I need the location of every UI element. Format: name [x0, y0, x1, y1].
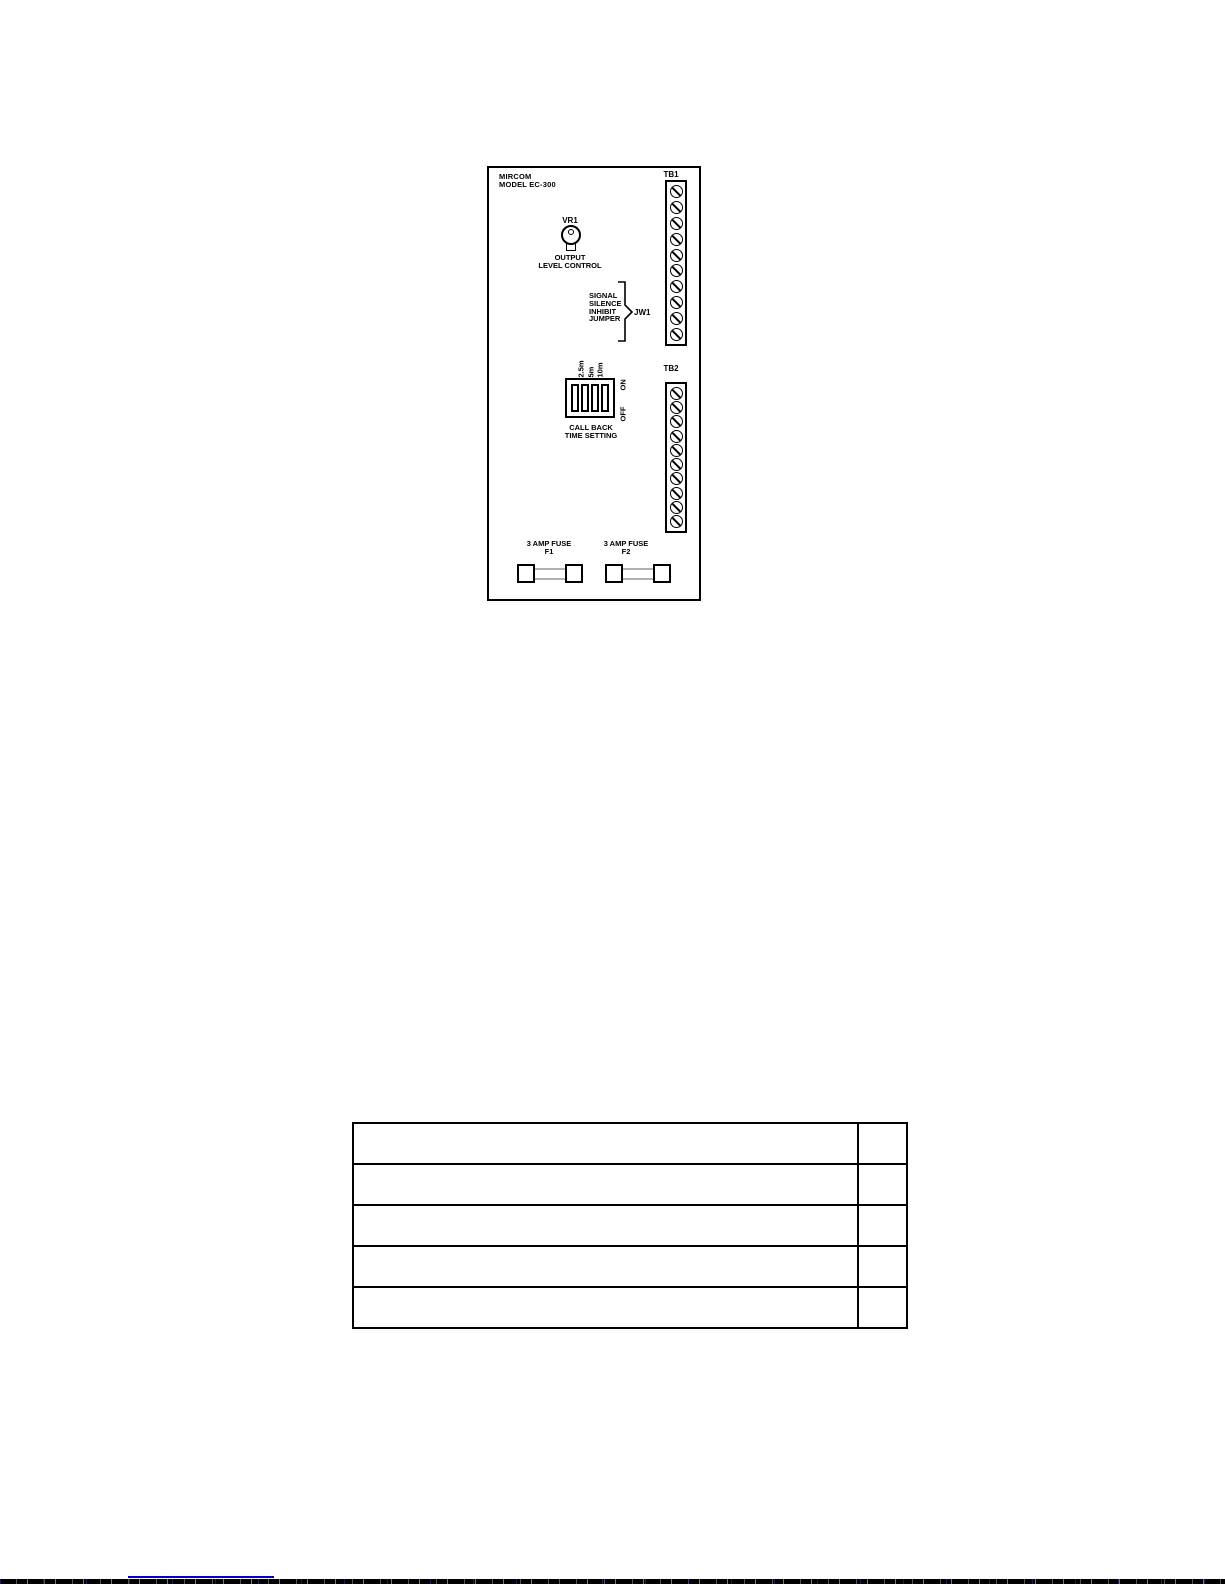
page-bottom-edge: [0, 1579, 1225, 1584]
table-cell-side: [857, 1247, 906, 1286]
table-cell-side: [857, 1206, 906, 1245]
table-cell-side: [857, 1124, 906, 1163]
screw-terminal-icon: [670, 401, 683, 414]
table-row: [354, 1204, 906, 1245]
screw-terminal-icon: [670, 264, 683, 277]
screw-terminal-icon: [670, 387, 683, 400]
screw-terminal-icon: [670, 185, 683, 198]
fuse-body: [535, 568, 565, 580]
tb2-label: TB2: [661, 364, 681, 373]
table-cell-main: [354, 1247, 857, 1286]
dip-switch-block: [565, 378, 615, 418]
screw-terminal-icon: [670, 328, 683, 341]
potentiometer-wiper-icon: [568, 229, 574, 235]
screw-terminal-icon: [670, 515, 683, 528]
dip-time-label-10m: 10m: [596, 350, 605, 378]
table-cell-main: [354, 1165, 857, 1204]
dip-switch-slot: [591, 384, 599, 412]
tb1-terminal-block: [665, 180, 687, 346]
fuse2-icon: [605, 564, 671, 583]
board-title: MIRCOMMODEL EC-300: [499, 173, 556, 189]
table-row: [354, 1286, 906, 1327]
screw-terminal-icon: [670, 472, 683, 485]
screw-terminal-icon: [670, 501, 683, 514]
table-cell-side: [857, 1165, 906, 1204]
dip-time-label-2-5m: 2.5m: [577, 350, 586, 378]
tb2-terminal-block: [665, 382, 687, 533]
dip-on-label: ON: [619, 375, 628, 391]
page-root: { "board": { "title_line1": "MIRCOM", "t…: [0, 0, 1225, 1585]
table-row: [354, 1245, 906, 1286]
output-level-caption: OUTPUTLEVEL CONTROL: [520, 254, 620, 270]
table-cell-main: [354, 1124, 857, 1163]
jw1-label: JW1: [634, 308, 650, 317]
fuse-end-cap: [517, 564, 535, 583]
footer-link-underline[interactable]: [128, 1576, 274, 1578]
fuse-end-cap: [605, 564, 623, 583]
table-row: [354, 1163, 906, 1204]
screw-terminal-icon: [670, 233, 683, 246]
screw-terminal-icon: [670, 217, 683, 230]
fuse1-icon: [517, 564, 583, 583]
screw-terminal-icon: [670, 201, 683, 214]
empty-table: [352, 1122, 908, 1329]
table-cell-main: [354, 1206, 857, 1245]
dip-switch-slot: [571, 384, 579, 412]
dip-switch-slot: [601, 384, 609, 412]
fuse-end-cap: [653, 564, 671, 583]
tb1-label: TB1: [661, 170, 681, 179]
callback-caption-line2: TIME SETTING: [565, 431, 618, 440]
fuse1-label: F1: [545, 547, 554, 556]
dip-switch-slot: [581, 384, 589, 412]
board-title-line2: MODEL EC-300: [499, 180, 556, 189]
screw-terminal-icon: [670, 487, 683, 500]
screw-terminal-icon: [670, 444, 683, 457]
screw-terminal-icon: [670, 249, 683, 262]
potentiometer-icon: [561, 225, 581, 245]
table-row: [354, 1124, 906, 1163]
output-caption-line2: LEVEL CONTROL: [538, 261, 601, 270]
table-cell-main: [354, 1288, 857, 1327]
screw-terminal-icon: [670, 280, 683, 293]
screw-terminal-icon: [670, 312, 683, 325]
screw-terminal-icon: [670, 296, 683, 309]
dip-off-label: OFF: [619, 400, 628, 422]
screw-terminal-icon: [670, 458, 683, 471]
callback-time-caption: CALL BACKTIME SETTING: [541, 424, 641, 440]
vr1-label: VR1: [555, 216, 585, 225]
fuse2-caption: 3 AMP FUSEF2: [576, 540, 676, 556]
screw-terminal-icon: [670, 430, 683, 443]
brace-icon: [617, 279, 634, 344]
fuse2-label: F2: [622, 547, 631, 556]
fuse-end-cap: [565, 564, 583, 583]
circuit-board-diagram: MIRCOMMODEL EC-300 TB1 VR1 OUTPUTLEVEL C…: [487, 166, 701, 601]
fuse-body: [623, 568, 653, 580]
dip-time-label-5m: 5m: [587, 350, 596, 378]
table-cell-side: [857, 1288, 906, 1327]
screw-terminal-icon: [670, 415, 683, 428]
